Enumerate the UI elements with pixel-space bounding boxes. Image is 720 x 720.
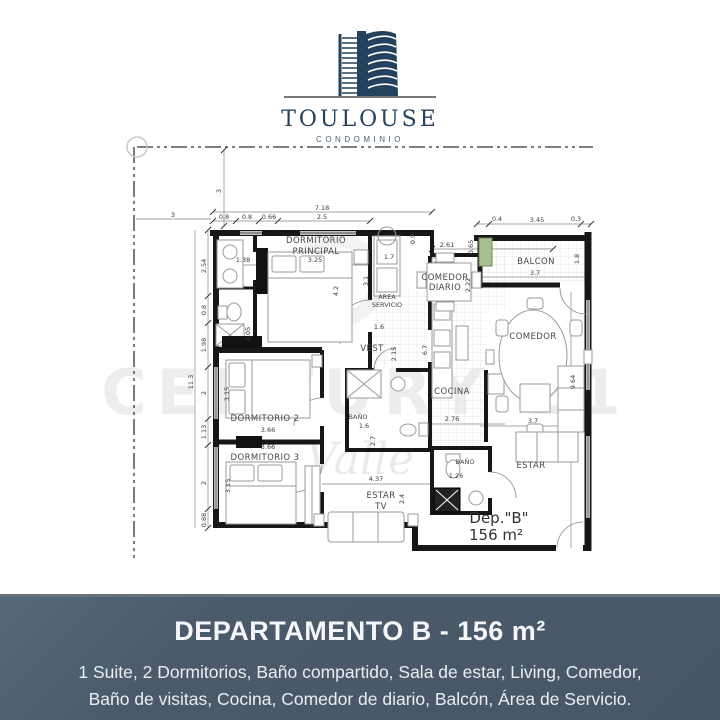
dim-065: 0.65 xyxy=(467,240,475,254)
unit-area: 156 m² xyxy=(469,526,523,544)
dim-04: 0.4 xyxy=(492,215,502,223)
dim-d3-366: 3.66 xyxy=(261,443,275,451)
dim-b27: 2.7 xyxy=(369,436,377,446)
dim-325: 3.25 xyxy=(308,256,322,264)
dim-088: 0.88 xyxy=(200,513,208,527)
label-dorm-principal: DORMITORIO xyxy=(286,236,346,246)
dim-25: 2.5 xyxy=(317,213,327,221)
dim-est-37: 3.7 xyxy=(528,417,538,425)
dim-113: 1.13 xyxy=(200,425,208,439)
dim-31: 3.1 xyxy=(362,276,370,286)
dim-l2b: 2 xyxy=(200,481,208,485)
dim-126: 1.26 xyxy=(449,472,463,480)
logo-building-icon xyxy=(0,28,720,100)
banner-description-line2: Baño de visitas, Cocina, Comedor de diar… xyxy=(0,686,720,713)
label-estar: ESTAR xyxy=(516,461,545,471)
label-estar-tv: ESTAR xyxy=(366,491,395,501)
dim-718: 7.18 xyxy=(315,204,329,212)
dim-03: 0.3 xyxy=(571,215,581,223)
label-cocina: COCINA xyxy=(434,387,470,397)
entrance-door-arc xyxy=(557,522,583,548)
dim-l2a: 2 xyxy=(200,391,208,395)
label-vest: VEST xyxy=(360,344,384,354)
logo-subtitle: CONDOMINIO xyxy=(0,135,720,144)
dim-boundary-v: 3 xyxy=(215,189,223,193)
dim-l08: 0.8 xyxy=(200,305,208,315)
label-balcon: BALCON xyxy=(517,257,555,267)
sofa-estar-tv xyxy=(314,512,418,542)
unit-name: Dep."B" xyxy=(469,509,528,527)
dim-09: 0.9 xyxy=(409,234,417,244)
info-banner: DEPARTAMENTO B - 156 m² 1 Suite, 2 Dormi… xyxy=(0,594,720,720)
unit-label: Dep."B" 156 m² xyxy=(469,509,529,544)
logo-title: TOULOUSE xyxy=(0,107,720,132)
dim-42: 4.2 xyxy=(332,286,340,296)
dim-v16: 1.6 xyxy=(374,323,384,331)
dim-066: 0.66 xyxy=(262,213,276,221)
dim-balc-37: 3.7 xyxy=(530,269,540,277)
dim-437: 4.37 xyxy=(369,475,383,483)
balcony-planter xyxy=(479,238,492,266)
dim-276: 2.76 xyxy=(445,415,459,423)
dim-08a: 0.8 xyxy=(219,213,229,221)
label-bano: BAÑO xyxy=(349,412,368,421)
laundry-units xyxy=(374,227,400,296)
dim-08b: 0.8 xyxy=(242,213,252,221)
dim-138: 1.38 xyxy=(236,256,250,264)
dim-215: 2.15 xyxy=(390,347,398,361)
dim-113-total: 11.3 xyxy=(187,375,195,389)
label-dorm3: DORMITORIO 3 xyxy=(231,453,300,463)
dim-67: 6.7 xyxy=(421,345,429,355)
dim-254: 2.54 xyxy=(200,259,208,273)
dim-d2-315: 3.15 xyxy=(223,387,231,401)
label-bano-visitas: BAÑO xyxy=(456,457,475,466)
dim-261: 2.61 xyxy=(440,241,454,249)
label-estar-tv-2: TV xyxy=(374,502,387,512)
dim-18: 1.8 xyxy=(573,254,581,264)
dim-d3-315: 3.15 xyxy=(224,479,232,493)
flyer-page: { "logo": { "title": "TOULOUSE", "subtit… xyxy=(0,0,720,720)
dim-b16: 1.6 xyxy=(359,422,369,430)
label-dorm2: DORMITORIO 2 xyxy=(231,414,300,424)
label-area-servicio: AREA xyxy=(378,293,396,301)
dim-24: 2.4 xyxy=(398,494,406,504)
logo: TOULOUSE CONDOMINIO xyxy=(0,28,720,144)
dim-boundary-h: 3 xyxy=(171,211,175,219)
label-comedor-diario-2: DIARIO xyxy=(429,283,461,293)
label-comedor: COMEDOR xyxy=(509,332,556,342)
dim-d2-366: 3.66 xyxy=(261,426,275,434)
label-dorm-principal-2: PRINCIPAL xyxy=(292,247,339,257)
dim-964: 9.64 xyxy=(569,375,577,389)
dim-198: 1.98 xyxy=(200,338,208,352)
dim-205: 2.05 xyxy=(244,327,252,341)
banner-title: DEPARTAMENTO B - 156 m² xyxy=(0,616,720,647)
label-area-servicio-2: SERVICIO xyxy=(372,301,402,309)
dim-345: 3.45 xyxy=(530,216,544,224)
dim-17: 1.7 xyxy=(384,253,394,261)
label-comedor-diario: COMEDOR xyxy=(421,273,468,283)
banner-description-line1: 1 Suite, 2 Dormitorios, Baño compartido,… xyxy=(0,659,720,686)
